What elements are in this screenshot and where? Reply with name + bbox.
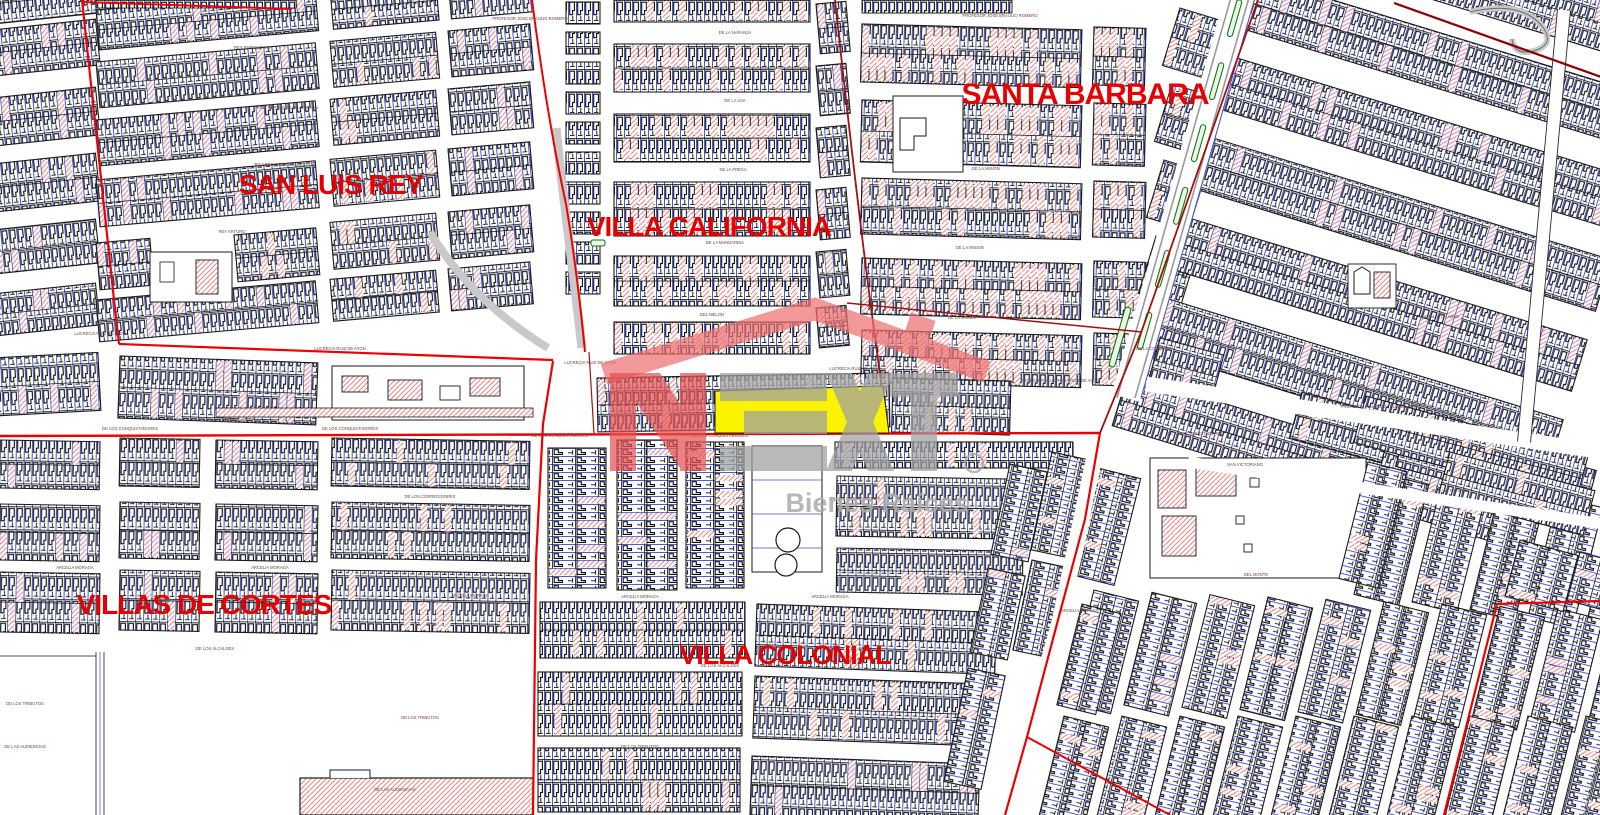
svg-text:DE LA NARANJA: DE LA NARANJA <box>719 30 752 35</box>
svg-text:PROFESOR JOSE BRAULIO ROMERO: PROFESOR JOSE BRAULIO ROMERO <box>962 13 1038 18</box>
svg-text:DE LA MISION: DE LA MISION <box>956 245 984 250</box>
svg-text:DE LA UVA: DE LA UVA <box>724 98 746 103</box>
svg-text:REY ENRIQUE VIII: REY ENRIQUE VIII <box>234 45 270 50</box>
svg-text:LUCRECIA RUIZ DE AYON: LUCRECIA RUIZ DE AYON <box>829 366 880 371</box>
svg-text:DE LOS CONQUISTADORES: DE LOS CONQUISTADORES <box>322 426 378 431</box>
svg-text:LUCRECIA RUIZ DE AYON: LUCRECIA RUIZ DE AYON <box>74 331 125 336</box>
svg-text:VILLAS DE CORTES: VILLAS DE CORTES <box>77 589 332 620</box>
svg-text:DE LA MISION: DE LA MISION <box>972 166 1000 171</box>
svg-text:DE LA MISION: DE LA MISION <box>948 315 976 320</box>
svg-text:SAN LUIS REY: SAN LUIS REY <box>239 169 424 200</box>
svg-text:DE LA FRESA: DE LA FRESA <box>720 167 747 172</box>
svg-text:SAN VICTORIANO: SAN VICTORIANO <box>1432 488 1468 493</box>
svg-text:LUCRECIA RUIZ DE AYON: LUCRECIA RUIZ DE AYON <box>314 346 365 351</box>
svg-text:DEL MELON: DEL MELON <box>700 312 724 317</box>
svg-text:ARCELIA MORAGA: ARCELIA MORAGA <box>451 593 489 598</box>
svg-text:DEL MONTE: DEL MONTE <box>1244 572 1268 577</box>
svg-text:PROFESORA LUCRECIA RUIZ DE AYO: PROFESORA LUCRECIA RUIZ DE AYON <box>1341 404 1420 409</box>
svg-text:REY FERNANDO DE ARAGON: REY FERNANDO DE ARAGON <box>258 105 317 110</box>
svg-text:RICARDO CORAZON DE LEON: RICARDO CORAZON DE LEON <box>255 162 316 167</box>
svg-text:ARCELIA MORAGA: ARCELIA MORAGA <box>56 565 94 570</box>
svg-text:DE LOS TRIBUTOS: DE LOS TRIBUTOS <box>6 701 44 706</box>
svg-text:DE LOS TRIBUTOS: DE LOS TRIBUTOS <box>401 715 439 720</box>
svg-text:ARCELIA MORAGA: ARCELIA MORAGA <box>621 594 659 599</box>
svg-text:PROFESORA LUCRECIA RUIZ DE AYO: PROFESORA LUCRECIA RUIZ DE AYON <box>1021 378 1100 383</box>
svg-text:DE LA CONQUISTA: DE LA CONQUISTA <box>1136 346 1174 351</box>
svg-text:VILLA CALIFORNIA: VILLA CALIFORNIA <box>587 211 832 242</box>
svg-text:DE LAS AUDIENCIAS: DE LAS AUDIENCIAS <box>374 787 416 792</box>
svg-text:DE LOS CONQUISTADORES: DE LOS CONQUISTADORES <box>102 426 158 431</box>
svg-text:DE LAS AUDIENCIAS: DE LAS AUDIENCIAS <box>4 744 46 749</box>
svg-text:SANTA BARBARA: SANTA BARBARA <box>962 78 1209 111</box>
svg-text:REY ARTURO: REY ARTURO <box>218 229 246 234</box>
svg-text:DE LOS CONQUISTADORES: DE LOS CONQUISTADORES <box>532 433 588 438</box>
svg-text:ARCELIA MORAGA: ARCELIA MORAGA <box>811 594 849 599</box>
svg-text:DE LOS CONQUISTADORES: DE LOS CONQUISTADORES <box>1167 431 1223 436</box>
svg-text:Bienes Raíces: Bienes Raíces <box>785 488 968 518</box>
svg-text:SAN VICTORIANO: SAN VICTORIANO <box>1227 462 1263 467</box>
svg-text:DE LOS TRIBUTOS: DE LOS TRIBUTOS <box>621 744 659 749</box>
svg-text:ARCELIA MORAGA: ARCELIA MORAGA <box>251 565 289 570</box>
svg-text:DE LOS ALCALDES: DE LOS ALCALDES <box>196 646 234 651</box>
svg-text:DE LOS CORREGIDORES: DE LOS CORREGIDORES <box>405 494 456 499</box>
svg-text:DE LA CONQUISTA: DE LA CONQUISTA <box>209 418 247 423</box>
svg-text:SAN MARTIN ABAD: SAN MARTIN ABAD <box>1421 314 1459 319</box>
svg-text:VILLA COLONIAL: VILLA COLONIAL <box>679 640 891 670</box>
svg-text:ARCELIA MORAGA: ARCELIA MORAGA <box>1061 608 1099 613</box>
svg-text:PROFESOR JOSE BRAULIO ROMERO: PROFESOR JOSE BRAULIO ROMERO <box>492 16 568 21</box>
